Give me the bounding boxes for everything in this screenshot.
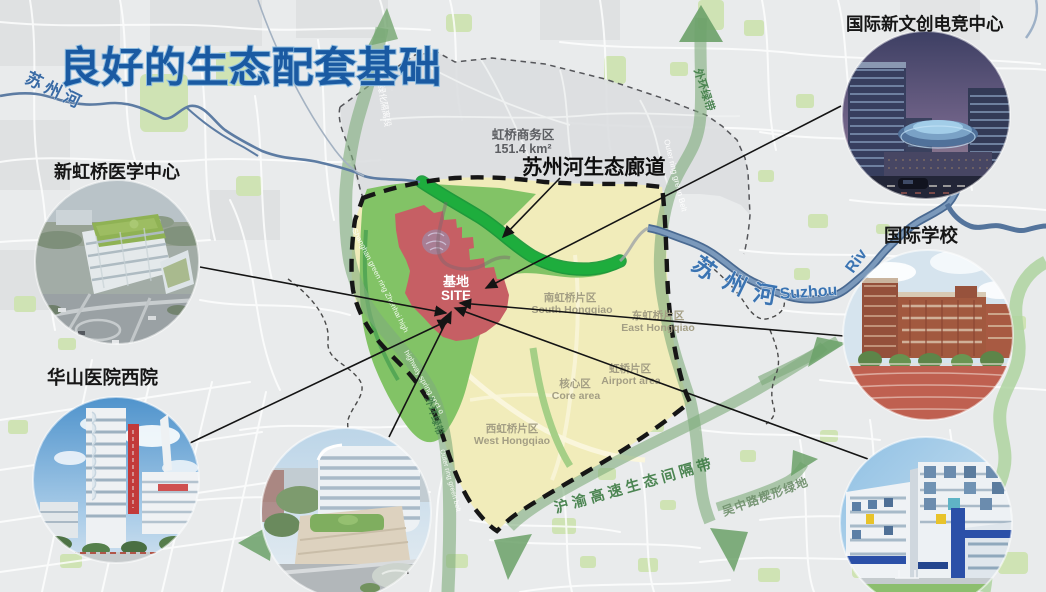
svg-text:基地: 基地 xyxy=(442,274,469,289)
svg-text:SITE: SITE xyxy=(441,288,471,303)
svg-text:Airport area: Airport area xyxy=(601,375,661,387)
svg-text:国际新文创电竞中心: 国际新文创电竞中心 xyxy=(846,14,1004,34)
svg-text:西虹桥片区: 西虹桥片区 xyxy=(486,422,539,435)
svg-text:良好的生态配套基础: 良好的生态配套基础 xyxy=(59,44,442,91)
svg-text:虹桥商务区: 虹桥商务区 xyxy=(492,127,555,142)
svg-text:虹桥片区: 虹桥片区 xyxy=(609,362,651,375)
svg-text:West Hongqiao: West Hongqiao xyxy=(474,435,550,447)
svg-text:新虹桥医学中心: 新虹桥医学中心 xyxy=(54,161,180,182)
svg-text:南虹桥片区: 南虹桥片区 xyxy=(544,291,597,304)
svg-text:East Hongqiao: East Hongqiao xyxy=(621,322,695,334)
svg-text:苏州河生态廊道: 苏州河生态廊道 xyxy=(522,155,666,179)
svg-text:华山医院西院: 华山医院西院 xyxy=(47,367,159,388)
svg-text:Core area: Core area xyxy=(552,390,601,402)
svg-text:国际学校: 国际学校 xyxy=(884,225,959,246)
svg-text:河: 河 xyxy=(751,279,778,309)
svg-text:核心区: 核心区 xyxy=(559,377,591,390)
svg-text:151.4 km²: 151.4 km² xyxy=(495,142,552,156)
